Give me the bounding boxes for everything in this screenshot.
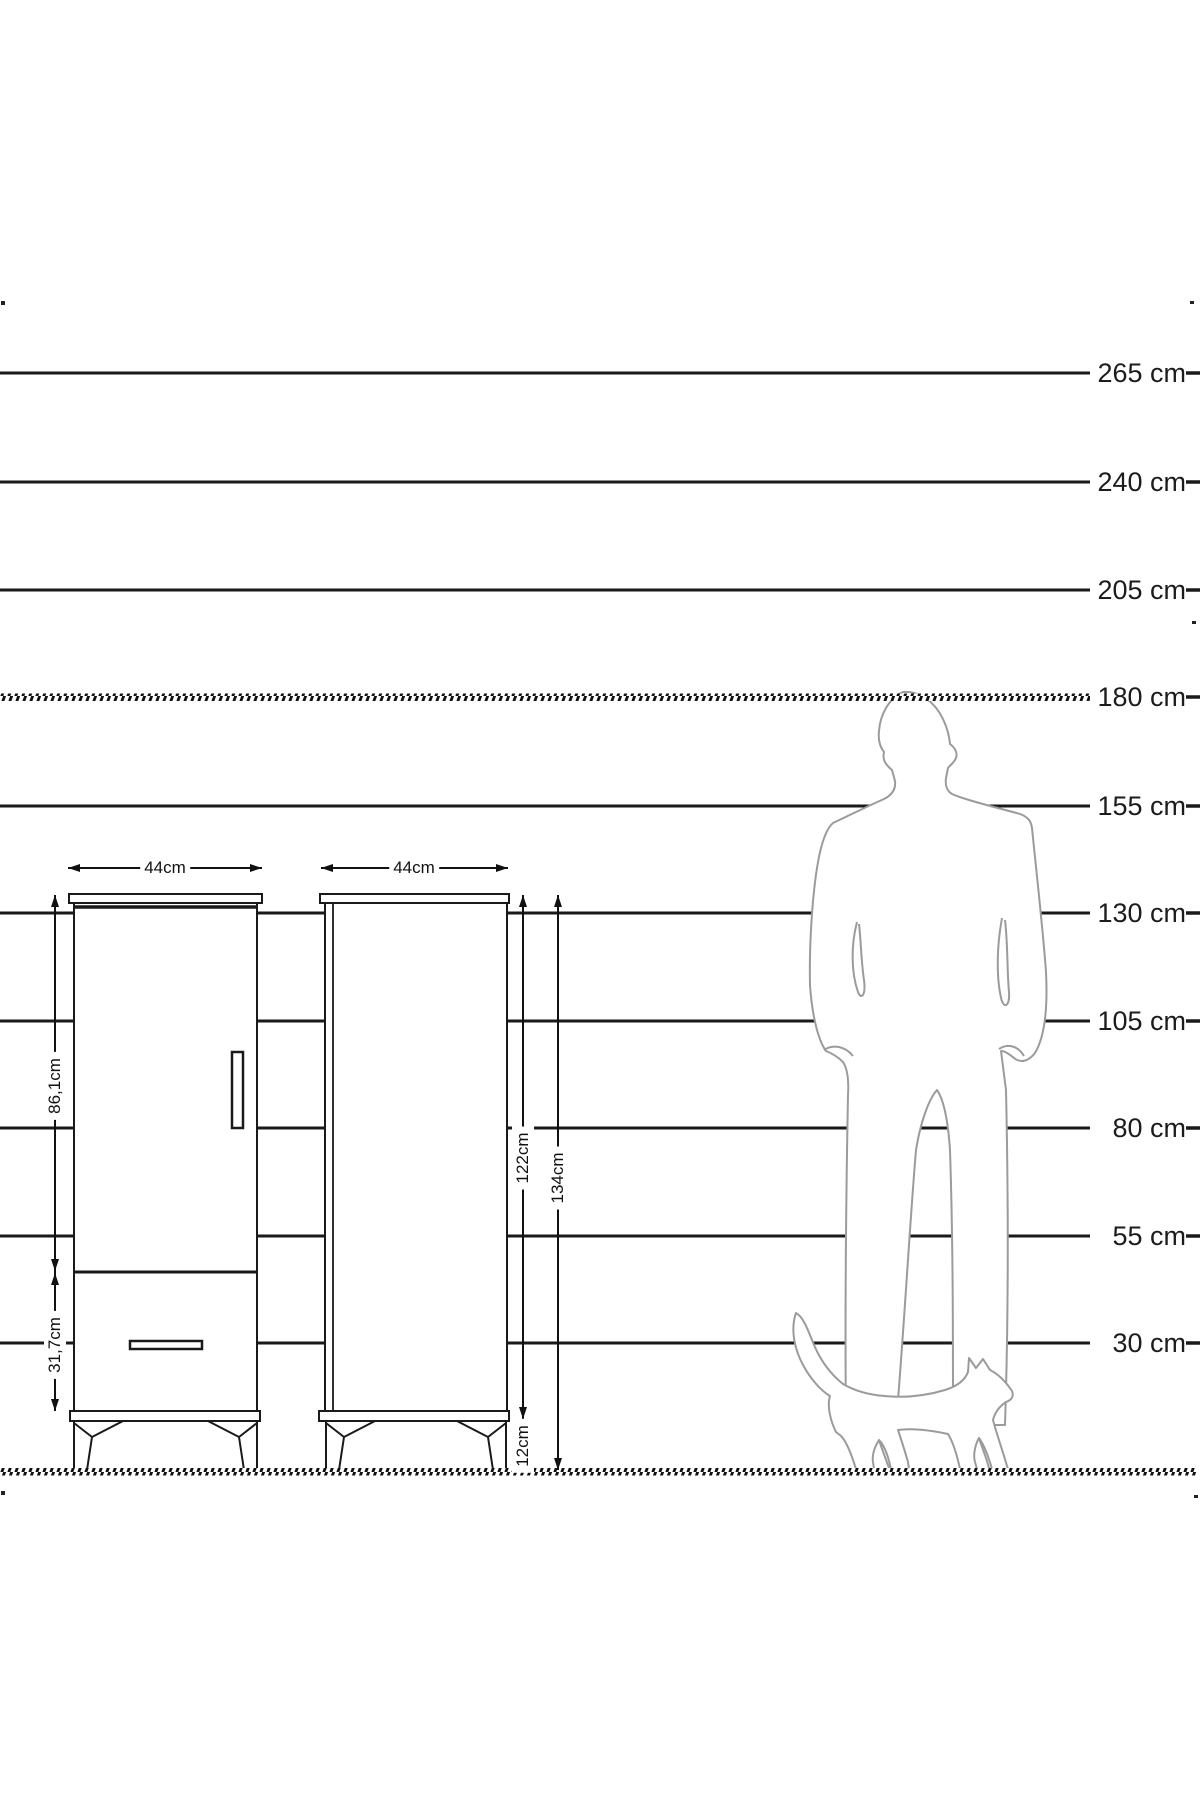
- cabinet-side-body: [325, 903, 507, 1413]
- cabinet-leg-front-right: [208, 1421, 257, 1470]
- man-outline: [810, 692, 1047, 1425]
- dimension-diagram: 265 cm 240 cm 205 cm 180 cm 155 cm 130 c…: [0, 0, 1200, 1800]
- scale-label-265: 265 cm: [1066, 354, 1186, 392]
- cabinet-side-view: [319, 894, 509, 1470]
- scale-label-240: 240 cm: [1066, 463, 1186, 501]
- cabinet-side-leg-left: [326, 1421, 375, 1470]
- diagram-canvas: [0, 0, 1200, 1800]
- scale-label-55: 55 cm: [1066, 1217, 1186, 1255]
- cabinet-top-board: [69, 894, 262, 903]
- scale-label-80: 80 cm: [1066, 1109, 1186, 1147]
- man-silhouette: [810, 692, 1047, 1425]
- scale-edge-ticks: [1186, 373, 1200, 1343]
- dim-label-door-height: 86,1cm: [44, 1052, 66, 1120]
- cabinet-side-bottom-board: [319, 1411, 509, 1421]
- dim-label-width-front: 44cm: [140, 858, 190, 878]
- cabinet-side-top-board: [320, 894, 509, 903]
- scale-label-205: 205 cm: [1066, 571, 1186, 609]
- cabinet-body: [74, 903, 257, 1413]
- door-handle: [232, 1052, 243, 1128]
- scale-label-155: 155 cm: [1066, 787, 1186, 825]
- cabinet-bottom-board: [70, 1411, 260, 1421]
- cabinet-front-view: [69, 894, 262, 1470]
- scale-line-180-hatched: [0, 694, 1090, 702]
- dim-label-carcass-height: 122cm: [512, 1126, 534, 1189]
- dim-label-leg-height: 12cm: [512, 1419, 534, 1473]
- dim-label-total-height: 134cm: [547, 1146, 569, 1209]
- dim-label-width-side: 44cm: [389, 858, 439, 878]
- cabinet-leg-front-left: [74, 1421, 123, 1470]
- scale-label-105: 105 cm: [1066, 1002, 1186, 1040]
- scale-label-30: 30 cm: [1066, 1324, 1186, 1362]
- drawer-handle: [130, 1341, 202, 1349]
- scale-label-130: 130 cm: [1066, 894, 1186, 932]
- cabinet-side-leg-right: [457, 1421, 506, 1470]
- floor-line-hatched: [0, 1468, 1197, 1476]
- scale-label-180: 180 cm: [1066, 678, 1186, 716]
- dim-label-drawer-height: 31,7cm: [44, 1311, 66, 1379]
